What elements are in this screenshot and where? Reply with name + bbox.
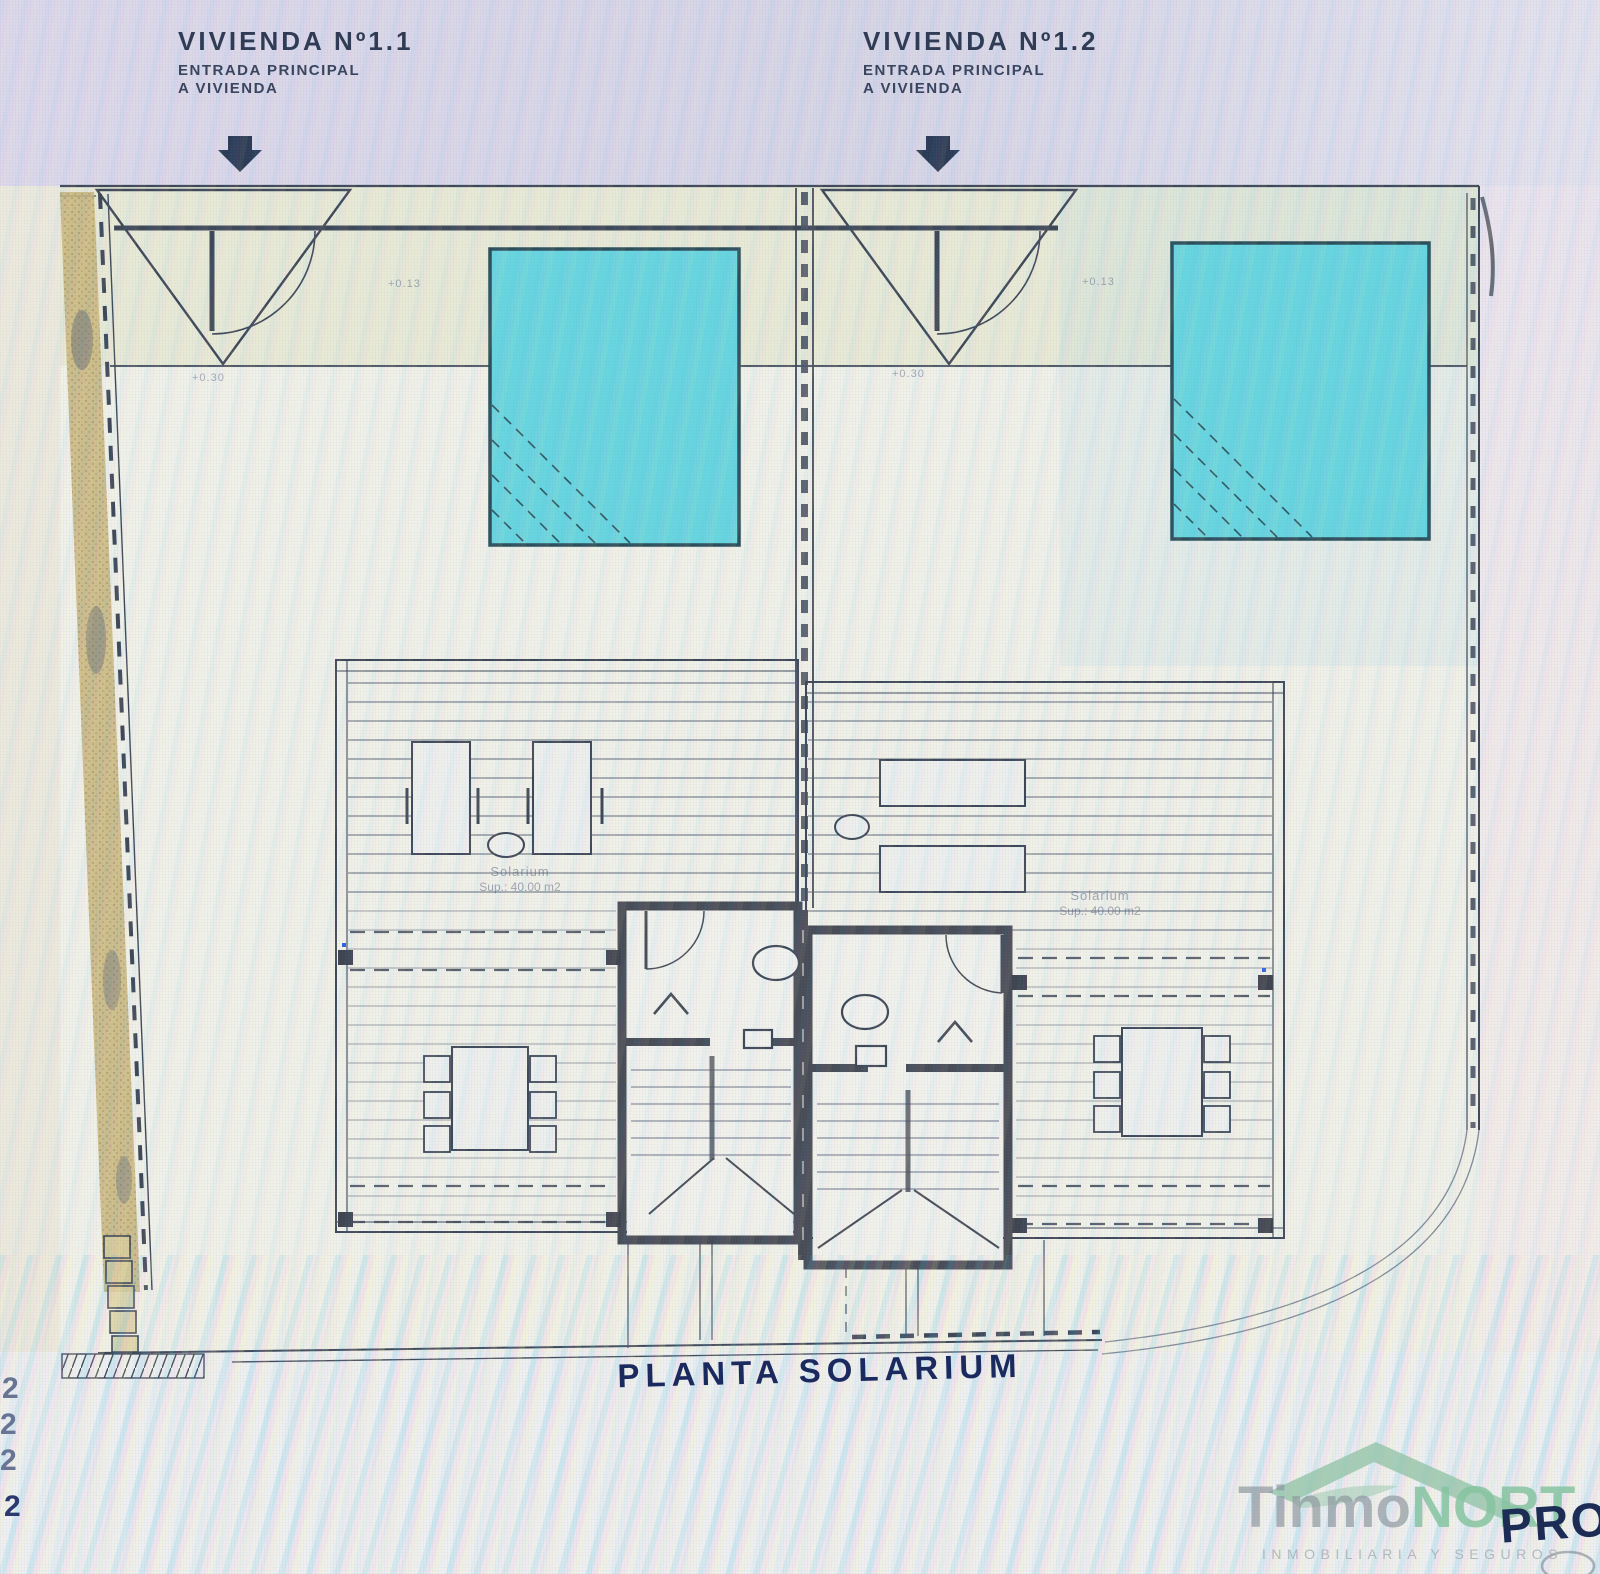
level-mark-pool-right: +0.13 xyxy=(1082,276,1115,288)
pools xyxy=(490,243,1429,545)
solarium-left-area: Sup.: 40.00 m2 xyxy=(440,880,600,895)
solarium-left-label: Solarium Sup.: 40.00 m2 xyxy=(440,864,600,895)
solarium-left-name: Solarium xyxy=(440,864,600,880)
margin-fragment: 2 xyxy=(0,1444,17,1478)
unit2-subtitle-line2: A VIVIENDA xyxy=(863,80,963,97)
entrance-arrow-down-icons xyxy=(218,136,960,172)
unit2-title: VIVIENDA Nº1.2 xyxy=(863,26,1098,57)
solarium-right-name: Solarium xyxy=(1020,888,1180,904)
floor-plan-photo: VIVIENDA Nº1.1 ENTRADA PRINCIPAL A VIVIE… xyxy=(0,0,1600,1574)
margin-fragment: 2 xyxy=(4,1490,21,1524)
unit1-title: VIVIENDA Nº1.1 xyxy=(178,26,413,57)
margin-fragment: 2 xyxy=(0,1408,17,1442)
stair-cores xyxy=(622,906,1008,1265)
unit1-subtitle-line1: ENTRADA PRINCIPAL xyxy=(178,62,360,79)
pool-right xyxy=(1172,243,1429,539)
unit2-subtitle-line1: ENTRADA PRINCIPAL xyxy=(863,62,1045,79)
watermark-brand-gray: Tinmo xyxy=(1238,1475,1411,1540)
unit1-subtitle-line2: A VIVIENDA xyxy=(178,80,278,97)
solarium-right-label: Solarium Sup.: 40.00 m2 xyxy=(1020,888,1180,919)
site-plan-drawing xyxy=(0,0,1600,1574)
level-mark-terrace-right: +0.30 xyxy=(892,368,925,380)
left-parcel-edge xyxy=(60,192,204,1378)
overlay-text-pro: PRO xyxy=(1498,1492,1600,1555)
level-mark-pool-left: +0.13 xyxy=(388,278,421,290)
solarium-right-area: Sup.: 40.00 m2 xyxy=(1020,904,1180,919)
pool-left xyxy=(490,249,739,545)
margin-fragment: 2 xyxy=(2,1372,19,1406)
level-mark-terrace-left: +0.30 xyxy=(192,372,225,384)
